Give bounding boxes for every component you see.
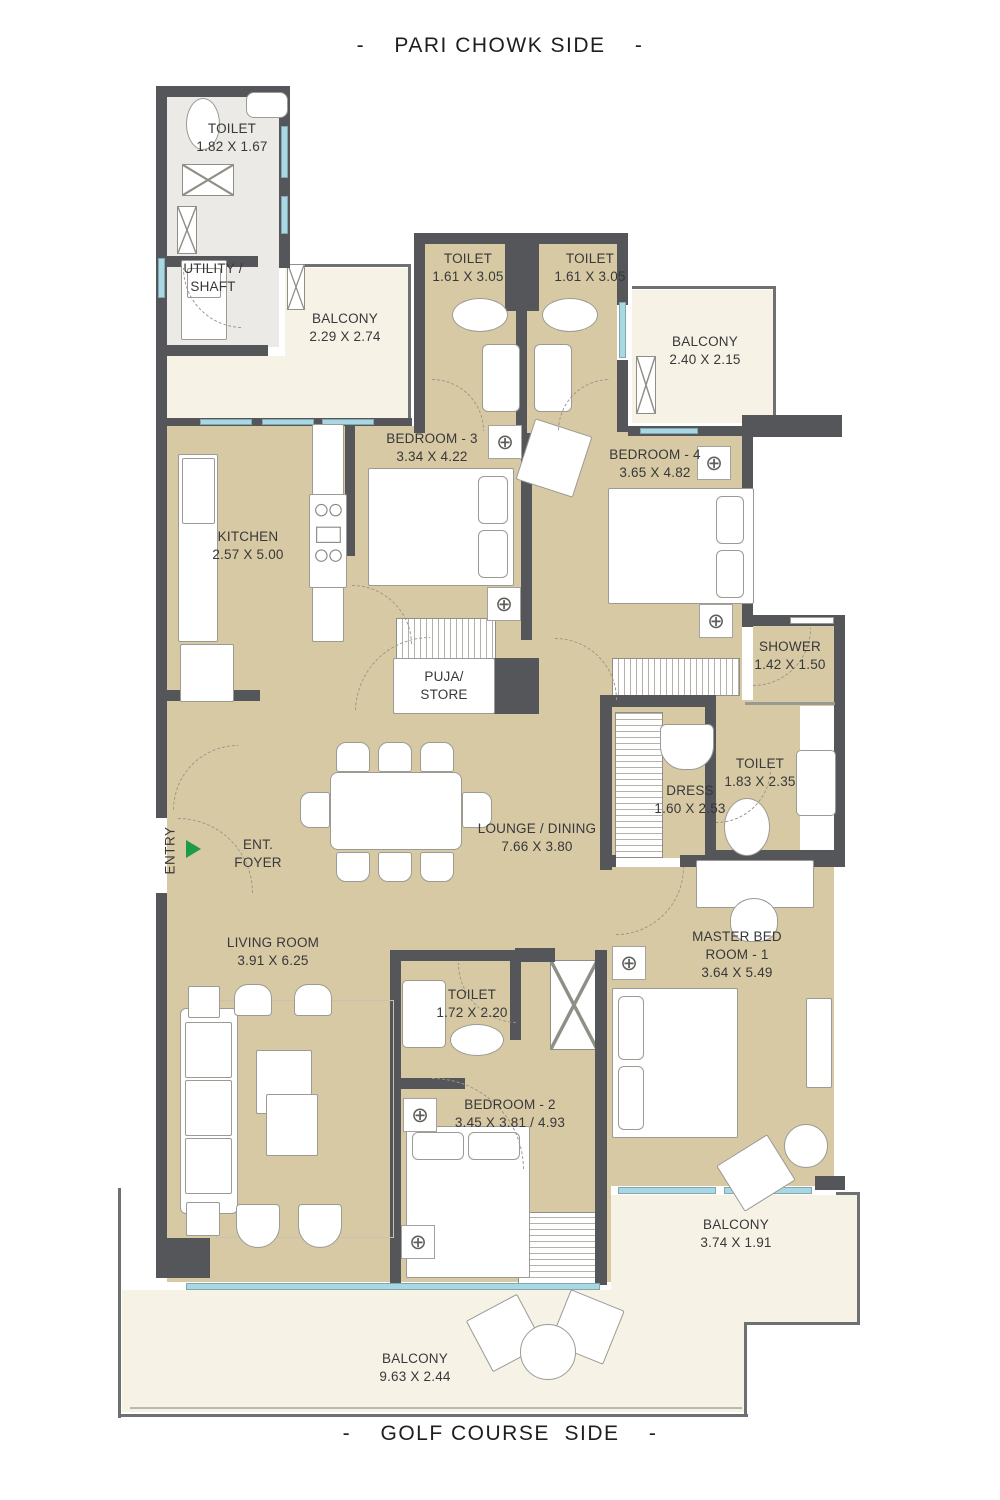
wall-segment — [595, 950, 607, 1285]
dining-table — [330, 772, 462, 850]
wall-segment — [156, 86, 167, 356]
balcony-step-floor — [611, 1282, 744, 1322]
floorplan-canvas: ⊕ ⊕ ⊕ ⊕ ⊕ ⊕ ⊕ ENTRY TOILET1.82 X 1.67 UT… — [0, 0, 1000, 1500]
ceiling-fan-icon: ⊕ — [699, 604, 733, 638]
dresser-master — [806, 998, 832, 1088]
room-label-master: MASTER BEDROOM - 13.64 X 5.49 — [692, 928, 782, 981]
wall-segment — [815, 1176, 845, 1190]
wall-segment — [505, 233, 539, 311]
wardrobe-hatch-bedroom4 — [612, 658, 740, 696]
window — [618, 1187, 716, 1194]
dining-chair — [378, 852, 412, 882]
room-label-shower: SHOWER1.42 X 1.50 — [754, 638, 825, 674]
window — [200, 419, 252, 425]
pillow — [716, 496, 744, 544]
room-label-puja: PUJA/STORE — [420, 668, 467, 704]
balcony-round-table — [520, 1324, 576, 1380]
pillow — [618, 996, 644, 1060]
room-label-kitchen: KITCHEN2.57 X 5.00 — [212, 528, 283, 564]
room-label-bedroom3: BEDROOM - 33.34 X 4.22 — [386, 430, 477, 466]
ceiling-fan-icon: ⊕ — [401, 1225, 435, 1259]
room-label-toilet-tl: TOILET1.82 X 1.67 — [196, 120, 267, 156]
wc-toilet-bed2 — [450, 1024, 504, 1056]
shaft-duct — [550, 960, 598, 1050]
railing — [744, 1322, 860, 1325]
room-label-toilet-b3: TOILET1.61 X 3.05 — [432, 250, 503, 286]
window — [158, 258, 165, 298]
wall-segment — [156, 1238, 210, 1278]
pillow — [716, 550, 744, 598]
sink-toilet-b3 — [482, 344, 520, 412]
armchair — [234, 984, 272, 1016]
window — [281, 126, 288, 178]
wardrobe-hatch-bedroom2 — [518, 1212, 598, 1284]
dining-chair — [336, 852, 370, 882]
armchair — [236, 1204, 280, 1248]
ceiling-fan-icon: ⊕ — [403, 1098, 437, 1132]
sofa-cushion — [185, 1022, 232, 1078]
sink-toilet-master — [796, 750, 836, 816]
window — [640, 428, 698, 434]
dining-chair — [420, 852, 454, 882]
wall-segment — [834, 615, 845, 861]
armchair — [294, 984, 332, 1016]
top-side-title: - PARI CHOWK SIDE - — [357, 34, 644, 58]
wall-segment — [414, 233, 425, 433]
railing — [118, 1188, 121, 1418]
pillow — [478, 476, 508, 524]
room-label-balcony-bottom: BALCONY9.63 X 2.44 — [379, 1350, 450, 1386]
room-label-bedroom4: BEDROOM - 43.65 X 4.82 — [609, 446, 700, 482]
railing — [408, 264, 411, 422]
shower-tray — [182, 164, 234, 196]
room-label-utility: UTILITY /SHAFT — [183, 260, 242, 296]
wall-segment — [600, 855, 616, 867]
room-label-foyer: ENT.FOYER — [234, 836, 282, 872]
room-label-living: LIVING ROOM3.91 X 6.25 — [227, 934, 319, 970]
wall-segment — [515, 948, 555, 962]
balcony-tl-floor-ext — [167, 356, 409, 420]
pillow — [618, 1066, 644, 1130]
ceiling-fan-icon: ⊕ — [488, 425, 522, 459]
railing — [130, 1407, 742, 1409]
window — [262, 419, 314, 425]
window — [790, 617, 834, 624]
dining-chair — [300, 792, 330, 828]
stove — [309, 494, 347, 588]
entry-label-wrap: ENTRY — [150, 815, 190, 885]
railing — [836, 1192, 860, 1195]
bottom-side-title: - GOLF COURSE SIDE - — [343, 1422, 658, 1446]
room-label-balcony-tl: BALCONY2.29 X 2.74 — [309, 310, 380, 346]
wall-segment — [600, 695, 612, 870]
room-label-balcony-master: BALCONY3.74 X 1.91 — [700, 1216, 771, 1252]
armchair — [298, 1204, 342, 1248]
room-label-bedroom2: BEDROOM - 23.45 X 3.81 / 4.93 — [455, 1096, 565, 1132]
wc-toilet-b4 — [542, 298, 598, 332]
railing — [632, 286, 776, 289]
room-label-dress: DRESS1.60 X 2.53 — [654, 782, 725, 818]
wall-segment — [742, 415, 842, 437]
room-label-lounge: LOUNGE / DINING7.66 X 3.80 — [478, 820, 597, 856]
wall-thin — [745, 702, 835, 705]
railing — [857, 1192, 860, 1324]
wall-segment — [156, 345, 268, 356]
sliding-window — [186, 1283, 600, 1290]
room-label-toilet-bed2: TOILET1.72 X 2.20 — [436, 986, 507, 1022]
kitchen-cabinet — [180, 644, 234, 702]
entry-label: ENTRY — [163, 826, 178, 874]
window — [619, 302, 626, 358]
wc-toilet-b3 — [452, 298, 508, 332]
duct — [287, 264, 305, 310]
room-label-toilet-master: TOILET1.83 X 2.35 — [724, 755, 795, 791]
railing — [744, 1322, 747, 1417]
duct — [636, 356, 656, 414]
railing — [773, 286, 776, 426]
ceiling-fan-icon: ⊕ — [612, 946, 646, 980]
dining-chair — [336, 742, 370, 772]
sofa-cushion — [185, 1080, 232, 1136]
wall-segment — [617, 360, 628, 432]
dining-chair — [420, 742, 454, 772]
wall-segment — [395, 950, 525, 961]
side-table — [188, 986, 220, 1018]
side-table — [186, 1202, 220, 1236]
wall-segment — [493, 658, 539, 714]
entry-arrow-icon — [186, 840, 201, 858]
sofa-cushion — [185, 1138, 232, 1194]
railing — [118, 1414, 748, 1417]
pillow — [478, 530, 508, 578]
wall-segment — [156, 893, 167, 1245]
sink-toilet-tl — [246, 92, 288, 118]
round-table-master — [784, 1124, 828, 1168]
fridge — [182, 458, 215, 524]
utility-duct — [177, 206, 197, 254]
coffee-table — [266, 1094, 318, 1156]
room-label-toilet-b4: TOILET1.61 X 3.05 — [554, 250, 625, 286]
ceiling-fan-icon: ⊕ — [487, 587, 521, 621]
ceiling-fan-icon: ⊕ — [697, 446, 731, 480]
wall-segment — [279, 238, 290, 268]
dress-chair — [660, 724, 714, 770]
room-label-balcony-tr: BALCONY2.40 X 2.15 — [669, 333, 740, 369]
wall-segment — [600, 695, 716, 707]
dining-chair — [378, 742, 412, 772]
window — [281, 196, 288, 234]
